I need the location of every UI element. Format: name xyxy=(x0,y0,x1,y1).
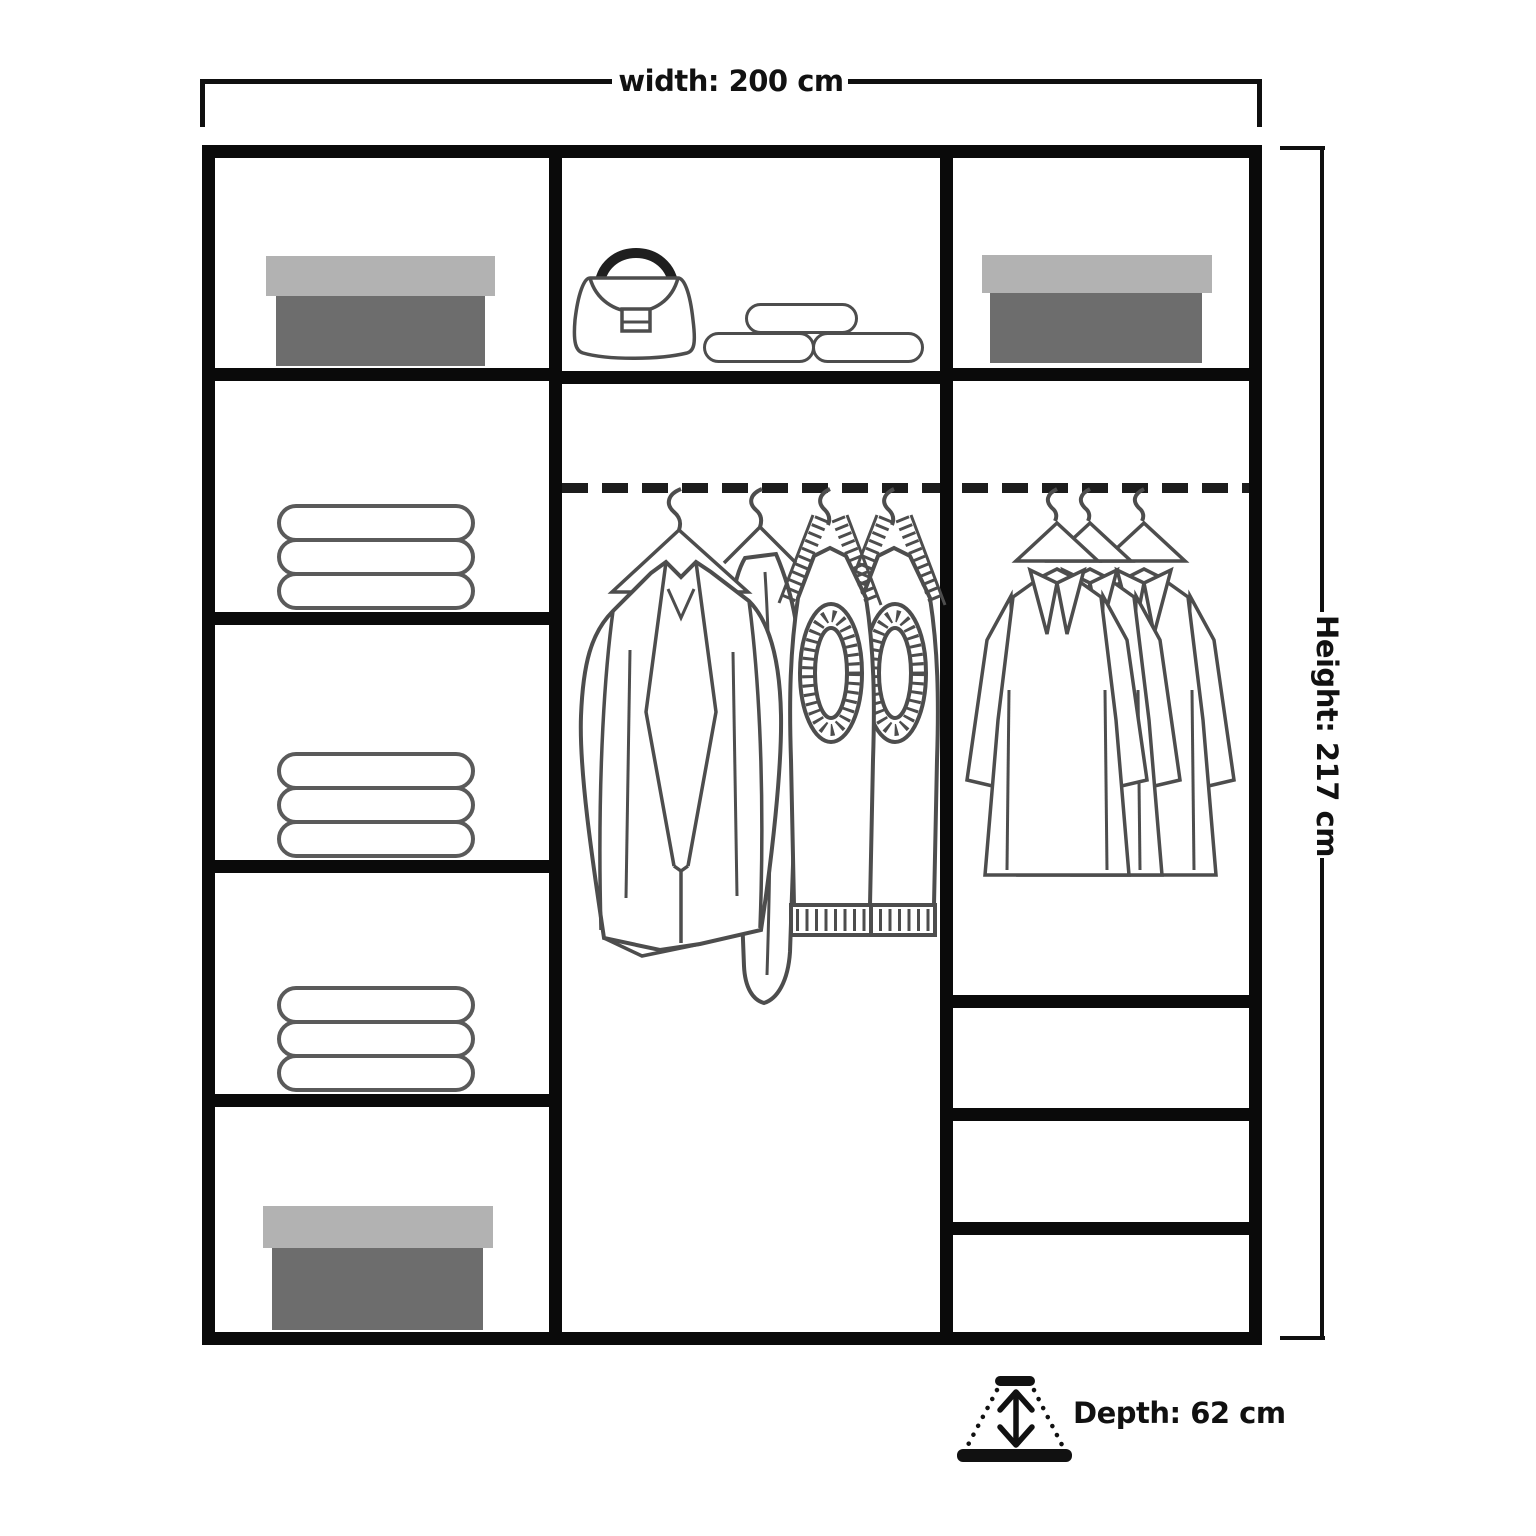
handbag-icon xyxy=(563,228,705,378)
shelf-divider xyxy=(215,612,549,625)
box-lid xyxy=(982,255,1212,293)
folded-item xyxy=(745,303,858,334)
drawer-divider xyxy=(953,1108,1249,1121)
width-dimension-tick-right xyxy=(1257,79,1262,127)
shelf-divider xyxy=(953,368,1249,381)
vertical-divider-right xyxy=(940,158,953,1332)
shelf-divider xyxy=(215,860,549,873)
folded-towel xyxy=(277,572,475,610)
box-body xyxy=(272,1248,483,1330)
folded-item xyxy=(703,332,815,363)
folded-towel xyxy=(277,752,475,790)
folded-towel xyxy=(277,504,475,542)
folded-towel xyxy=(277,1054,475,1092)
depth-range-icon xyxy=(950,1368,1080,1468)
folded-item xyxy=(812,332,924,363)
folded-towel xyxy=(277,986,475,1024)
box-lid xyxy=(263,1206,493,1248)
height-dimension-line-bottom xyxy=(1320,858,1324,1338)
box-body xyxy=(990,293,1202,363)
height-dimension-line-top xyxy=(1320,146,1324,612)
height-dimension-tick-top xyxy=(1280,146,1325,150)
height-dimension-tick-bottom xyxy=(1280,1336,1325,1340)
height-dimension-label: Height: 217 cm xyxy=(1310,615,1344,857)
box-body xyxy=(276,296,485,366)
depth-dimension-label: Depth: 62 cm xyxy=(1073,1396,1286,1430)
folded-towel xyxy=(277,820,475,858)
shelf-divider xyxy=(215,1094,549,1107)
width-dimension-line-right xyxy=(848,79,1262,84)
box-lid xyxy=(266,256,495,296)
hanging-shirts-icon xyxy=(953,480,1249,890)
width-dimension-tick-left xyxy=(200,79,205,127)
folded-towel xyxy=(277,786,475,824)
drawer-divider xyxy=(953,1222,1249,1235)
folded-towel xyxy=(277,538,475,576)
width-dimension-label: width: 200 cm xyxy=(618,64,843,98)
drawer-divider xyxy=(953,995,1249,1008)
folded-towel xyxy=(277,1020,475,1058)
hanging-clothes-icon xyxy=(561,480,941,1020)
shelf-divider xyxy=(215,368,549,381)
wardrobe-dimensions-diagram: width: 200 cm Height: 217 cm xyxy=(0,0,1536,1536)
width-dimension-line-left xyxy=(200,79,612,84)
